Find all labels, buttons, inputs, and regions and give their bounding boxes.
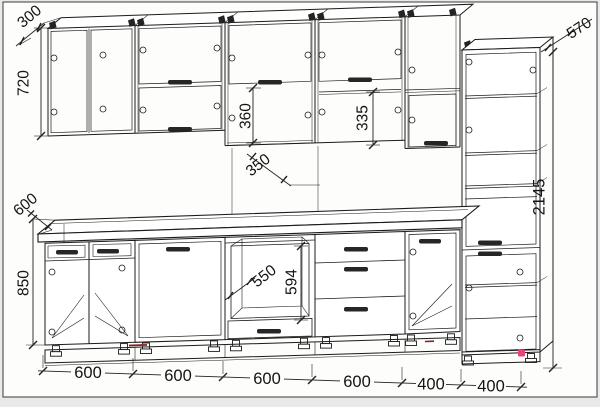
- dim-width-600-1: 600: [74, 364, 102, 382]
- handle: [258, 80, 282, 85]
- handle: [478, 241, 502, 246]
- dim-opening-height: 335: [355, 105, 372, 131]
- dim-oven-opening-height: 594: [284, 269, 301, 295]
- dim-wall-height: 720: [16, 70, 33, 96]
- handle: [166, 247, 190, 252]
- drawing-sheet: 300 720 600 850 360 350 335 550 594 570 …: [0, 0, 600, 407]
- kitchen-technical-drawing: 300 720 600 850 360 350 335 550 594 570 …: [0, 0, 600, 402]
- base-cabinet-door: [135, 237, 225, 342]
- handle: [97, 249, 119, 254]
- handle: [344, 247, 368, 252]
- handle: [419, 239, 441, 244]
- handle: [168, 127, 192, 132]
- dim-width-400-2: 400: [477, 378, 505, 396]
- handle: [257, 329, 281, 334]
- handle: [344, 267, 368, 272]
- dim-niche-height: 360: [238, 103, 255, 129]
- handle: [344, 307, 368, 312]
- dim-base-height: 850: [16, 270, 33, 296]
- handle: [168, 80, 192, 85]
- dim-width-600-4: 600: [343, 373, 371, 391]
- corner-marker-accent: [518, 350, 525, 357]
- base-cabinet-sink: [45, 240, 135, 345]
- base-cabinet-run: [45, 230, 460, 345]
- dim-width-600-2: 600: [164, 367, 192, 385]
- handle: [478, 252, 502, 257]
- dim-width-400-1: 400: [417, 376, 445, 394]
- handle: [56, 250, 78, 255]
- dim-total-height: 2145: [531, 179, 549, 216]
- base-cabinet-oven: [225, 235, 315, 340]
- plinth-mark-accent: [129, 345, 147, 346]
- base-cabinet-400: [405, 230, 460, 334]
- dim-width-600-3: 600: [253, 370, 281, 388]
- handle: [424, 141, 448, 146]
- handle: [348, 78, 372, 83]
